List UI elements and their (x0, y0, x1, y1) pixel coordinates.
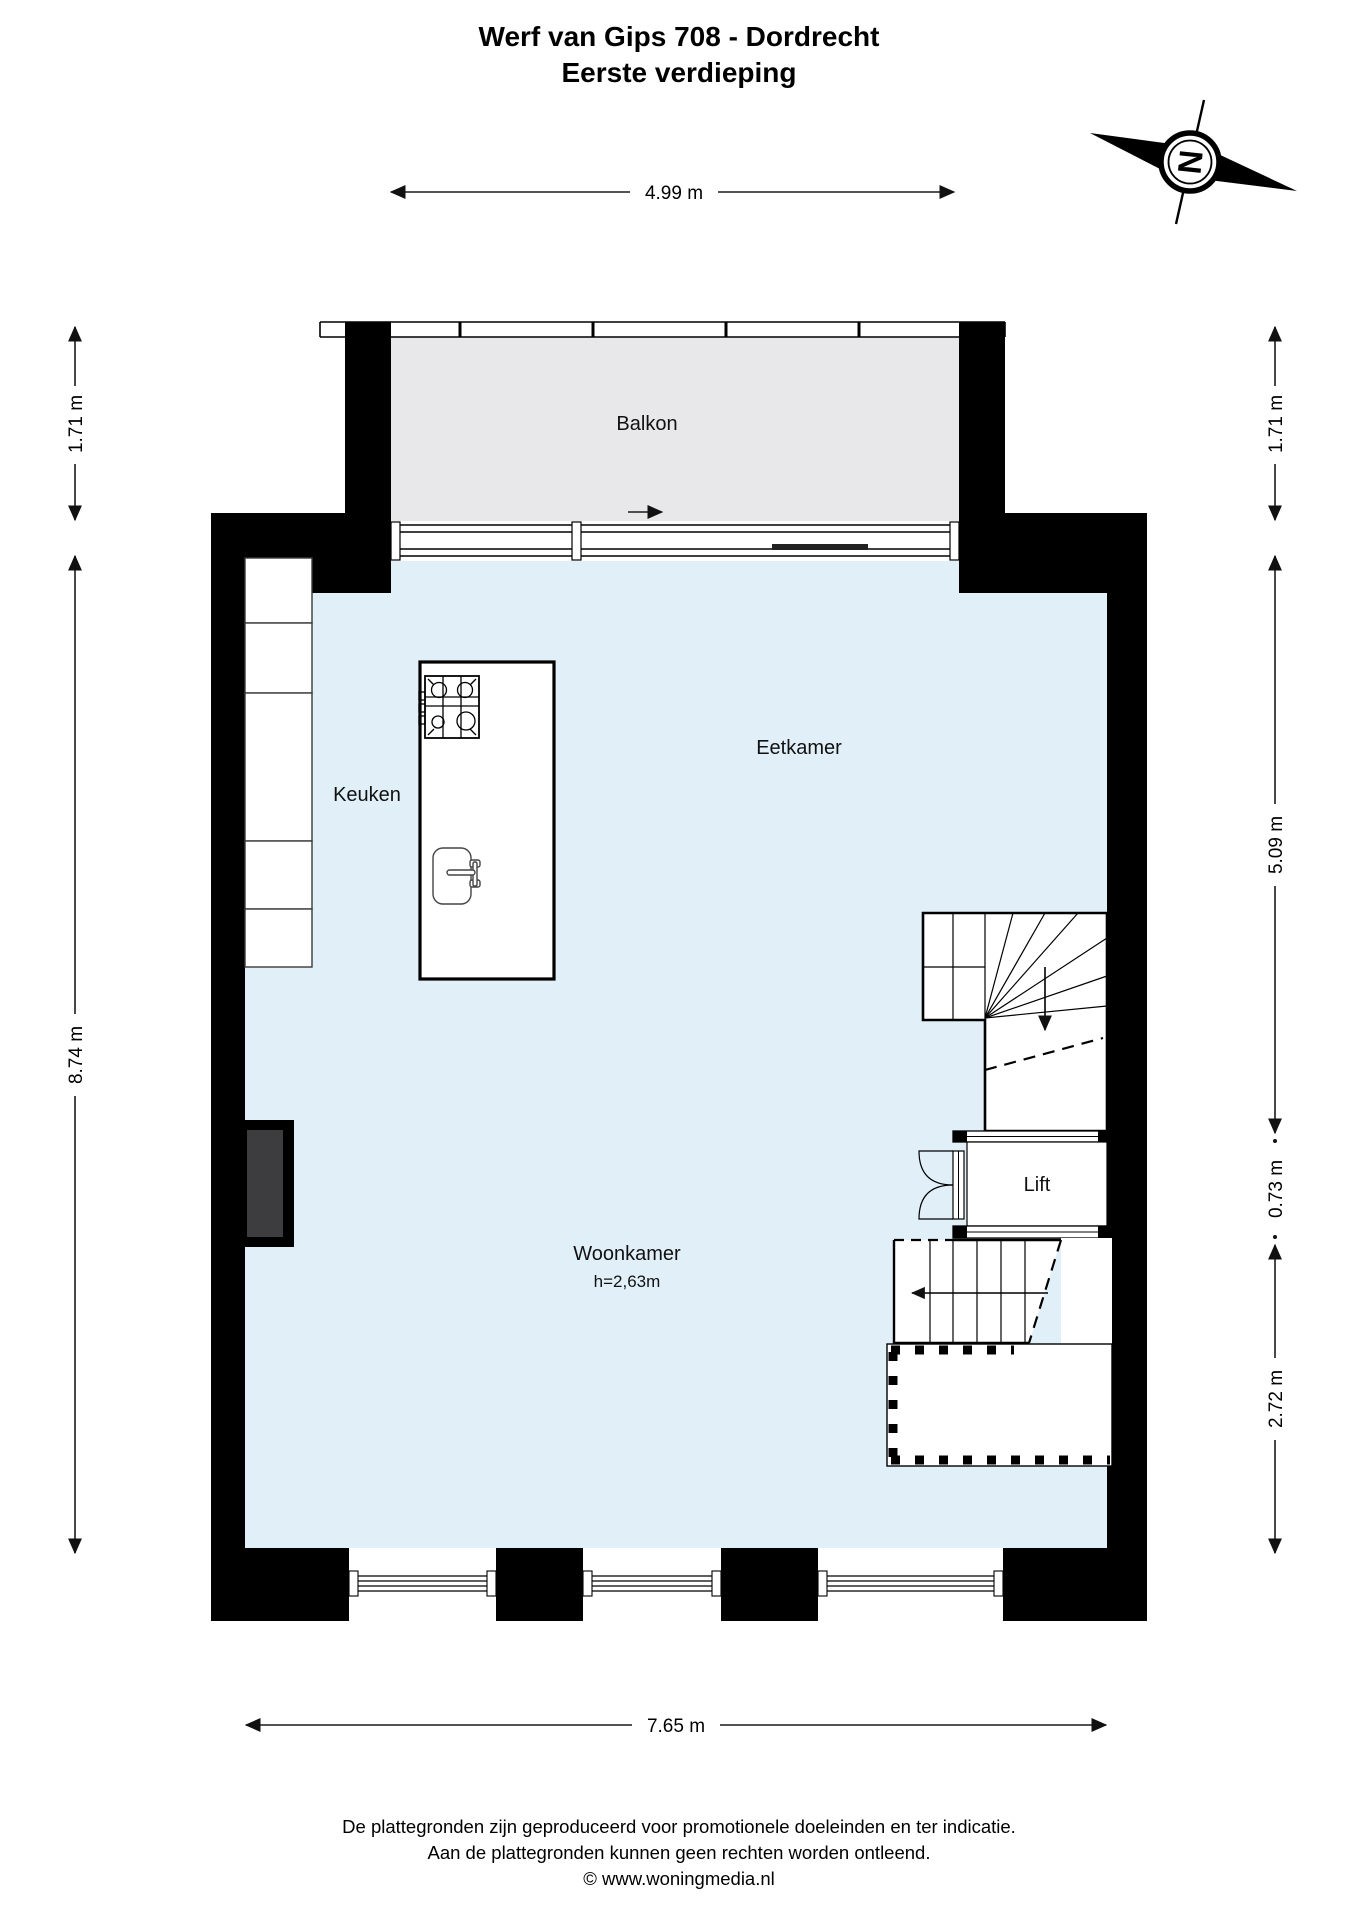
stairwell-void (1061, 1238, 1112, 1344)
title-line2: Eerste verdieping (562, 57, 797, 88)
dim-right-upper-label: 5.09 m (1266, 816, 1287, 874)
dimension-left-main: 8.74 m (62, 556, 88, 1553)
wall-bottom-4 (1003, 1548, 1147, 1621)
title-line1: Werf van Gips 708 - Dordrecht (479, 21, 880, 52)
dimension-top-balcony: 4.99 m (391, 179, 954, 205)
dim-right-balcony-label: 1.71 m (1266, 395, 1287, 453)
wall-right (1107, 513, 1147, 1621)
sliding-door-panel (772, 544, 868, 550)
dim-right-lift-label: 0.73 m (1266, 1160, 1287, 1218)
room-label-kitchen: Keuken (333, 784, 401, 806)
dim-left-balcony-label: 1.71 m (66, 395, 87, 453)
kitchen-island (419, 662, 554, 979)
compass-rose-icon: N (1090, 100, 1297, 224)
footer-line2: Aan de plattegronden kunnen geen rechten… (428, 1842, 931, 1863)
footer-disclaimer: De plattegronden zijn geproduceerd voor … (342, 1816, 1016, 1889)
wall-bottom-3 (721, 1548, 818, 1621)
room-label-living: Woonkamer (573, 1243, 681, 1265)
footer-line3: © www.woningmedia.nl (583, 1868, 775, 1889)
chimney (245, 1120, 294, 1247)
stove-icon (419, 676, 479, 738)
wall-bottom-1 (211, 1548, 349, 1621)
compass-north-label: N (1171, 148, 1210, 176)
window-end-cap (950, 522, 959, 560)
floorplan: Lift (211, 322, 1147, 1621)
window-end-cap (391, 522, 400, 560)
wall-balcony-left (345, 322, 391, 593)
kitchen-counter (245, 558, 312, 967)
wall-bottom-2 (496, 1548, 583, 1621)
dimension-left-balcony: 1.71 m (62, 327, 88, 520)
dimension-right-balcony: 1.71 m (1262, 327, 1288, 520)
chimney-core (247, 1130, 283, 1237)
dimension-right-lower: 2.72 m (1262, 1245, 1288, 1553)
dimension-bottom-main: 7.65 m (246, 1712, 1106, 1738)
floorplan-canvas: Werf van Gips 708 - Dordrecht Eerste ver… (0, 0, 1358, 1920)
bottom-windows (349, 1571, 1003, 1596)
room-label-balcony: Balkon (616, 413, 677, 435)
dim-bottom-label: 7.65 m (647, 1716, 705, 1737)
page-title: Werf van Gips 708 - Dordrecht Eerste ver… (479, 21, 880, 88)
floorplan-page: Werf van Gips 708 - Dordrecht Eerste ver… (0, 0, 1358, 1920)
balcony-railing (320, 322, 1005, 337)
dim-right-lower-label: 2.72 m (1266, 1370, 1287, 1428)
wall-left (211, 513, 245, 1621)
footer-line1: De plattegronden zijn geproduceerd voor … (342, 1816, 1016, 1837)
dimension-right-upper: 5.09 m (1262, 556, 1288, 1133)
window-mullion (572, 522, 581, 560)
wall-balcony-right (959, 322, 1005, 513)
void-railing (887, 1344, 1112, 1466)
room-label-lift: Lift (1024, 1174, 1051, 1196)
room-label-dining: Eetkamer (756, 737, 842, 759)
room-label-living-height: h=2,63m (594, 1272, 661, 1291)
dimension-right-lift: 0.73 m (1266, 1139, 1287, 1239)
dim-left-main-label: 8.74 m (66, 1026, 87, 1084)
dim-top-label: 4.99 m (645, 183, 703, 204)
staircase-lower (894, 1238, 1112, 1344)
